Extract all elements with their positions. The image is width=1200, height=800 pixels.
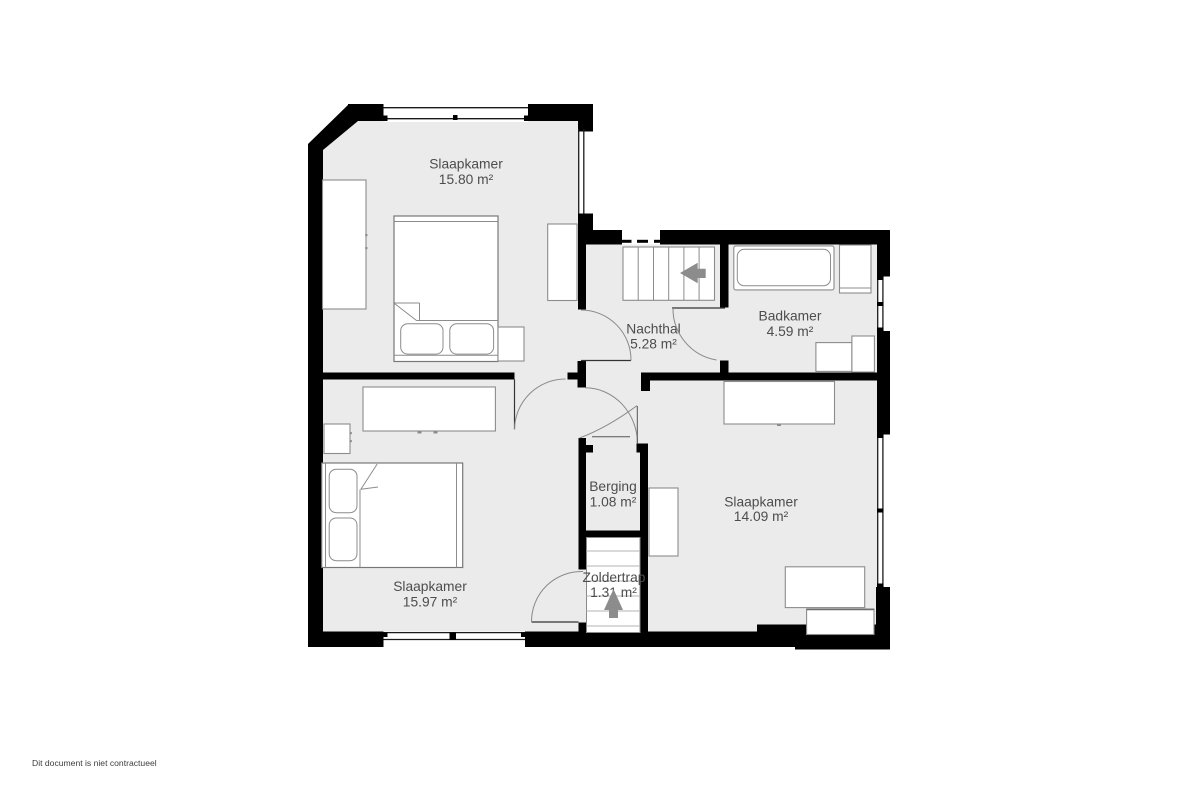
svg-text:Nachthal: Nachthal <box>626 322 680 337</box>
svg-text:15.80 m²: 15.80 m² <box>439 172 494 187</box>
svg-text:Badkamer: Badkamer <box>759 308 822 323</box>
svg-text:Berging: Berging <box>589 479 637 494</box>
svg-text:14.09 m²: 14.09 m² <box>734 509 789 524</box>
svg-text:1.08 m²: 1.08 m² <box>590 495 637 510</box>
svg-text:Slaapkamer: Slaapkamer <box>393 579 467 594</box>
svg-text:4.59 m²: 4.59 m² <box>767 324 814 339</box>
svg-text:Slaapkamer: Slaapkamer <box>429 157 503 172</box>
svg-text:Dit document is niet contractu: Dit document is niet contractueel <box>32 758 157 768</box>
svg-text:15.97 m²: 15.97 m² <box>403 595 458 610</box>
svg-text:Slaapkamer: Slaapkamer <box>724 494 798 509</box>
svg-text:5.28 m²: 5.28 m² <box>630 337 677 352</box>
svg-text:Zoldertrap: Zoldertrap <box>583 570 646 585</box>
